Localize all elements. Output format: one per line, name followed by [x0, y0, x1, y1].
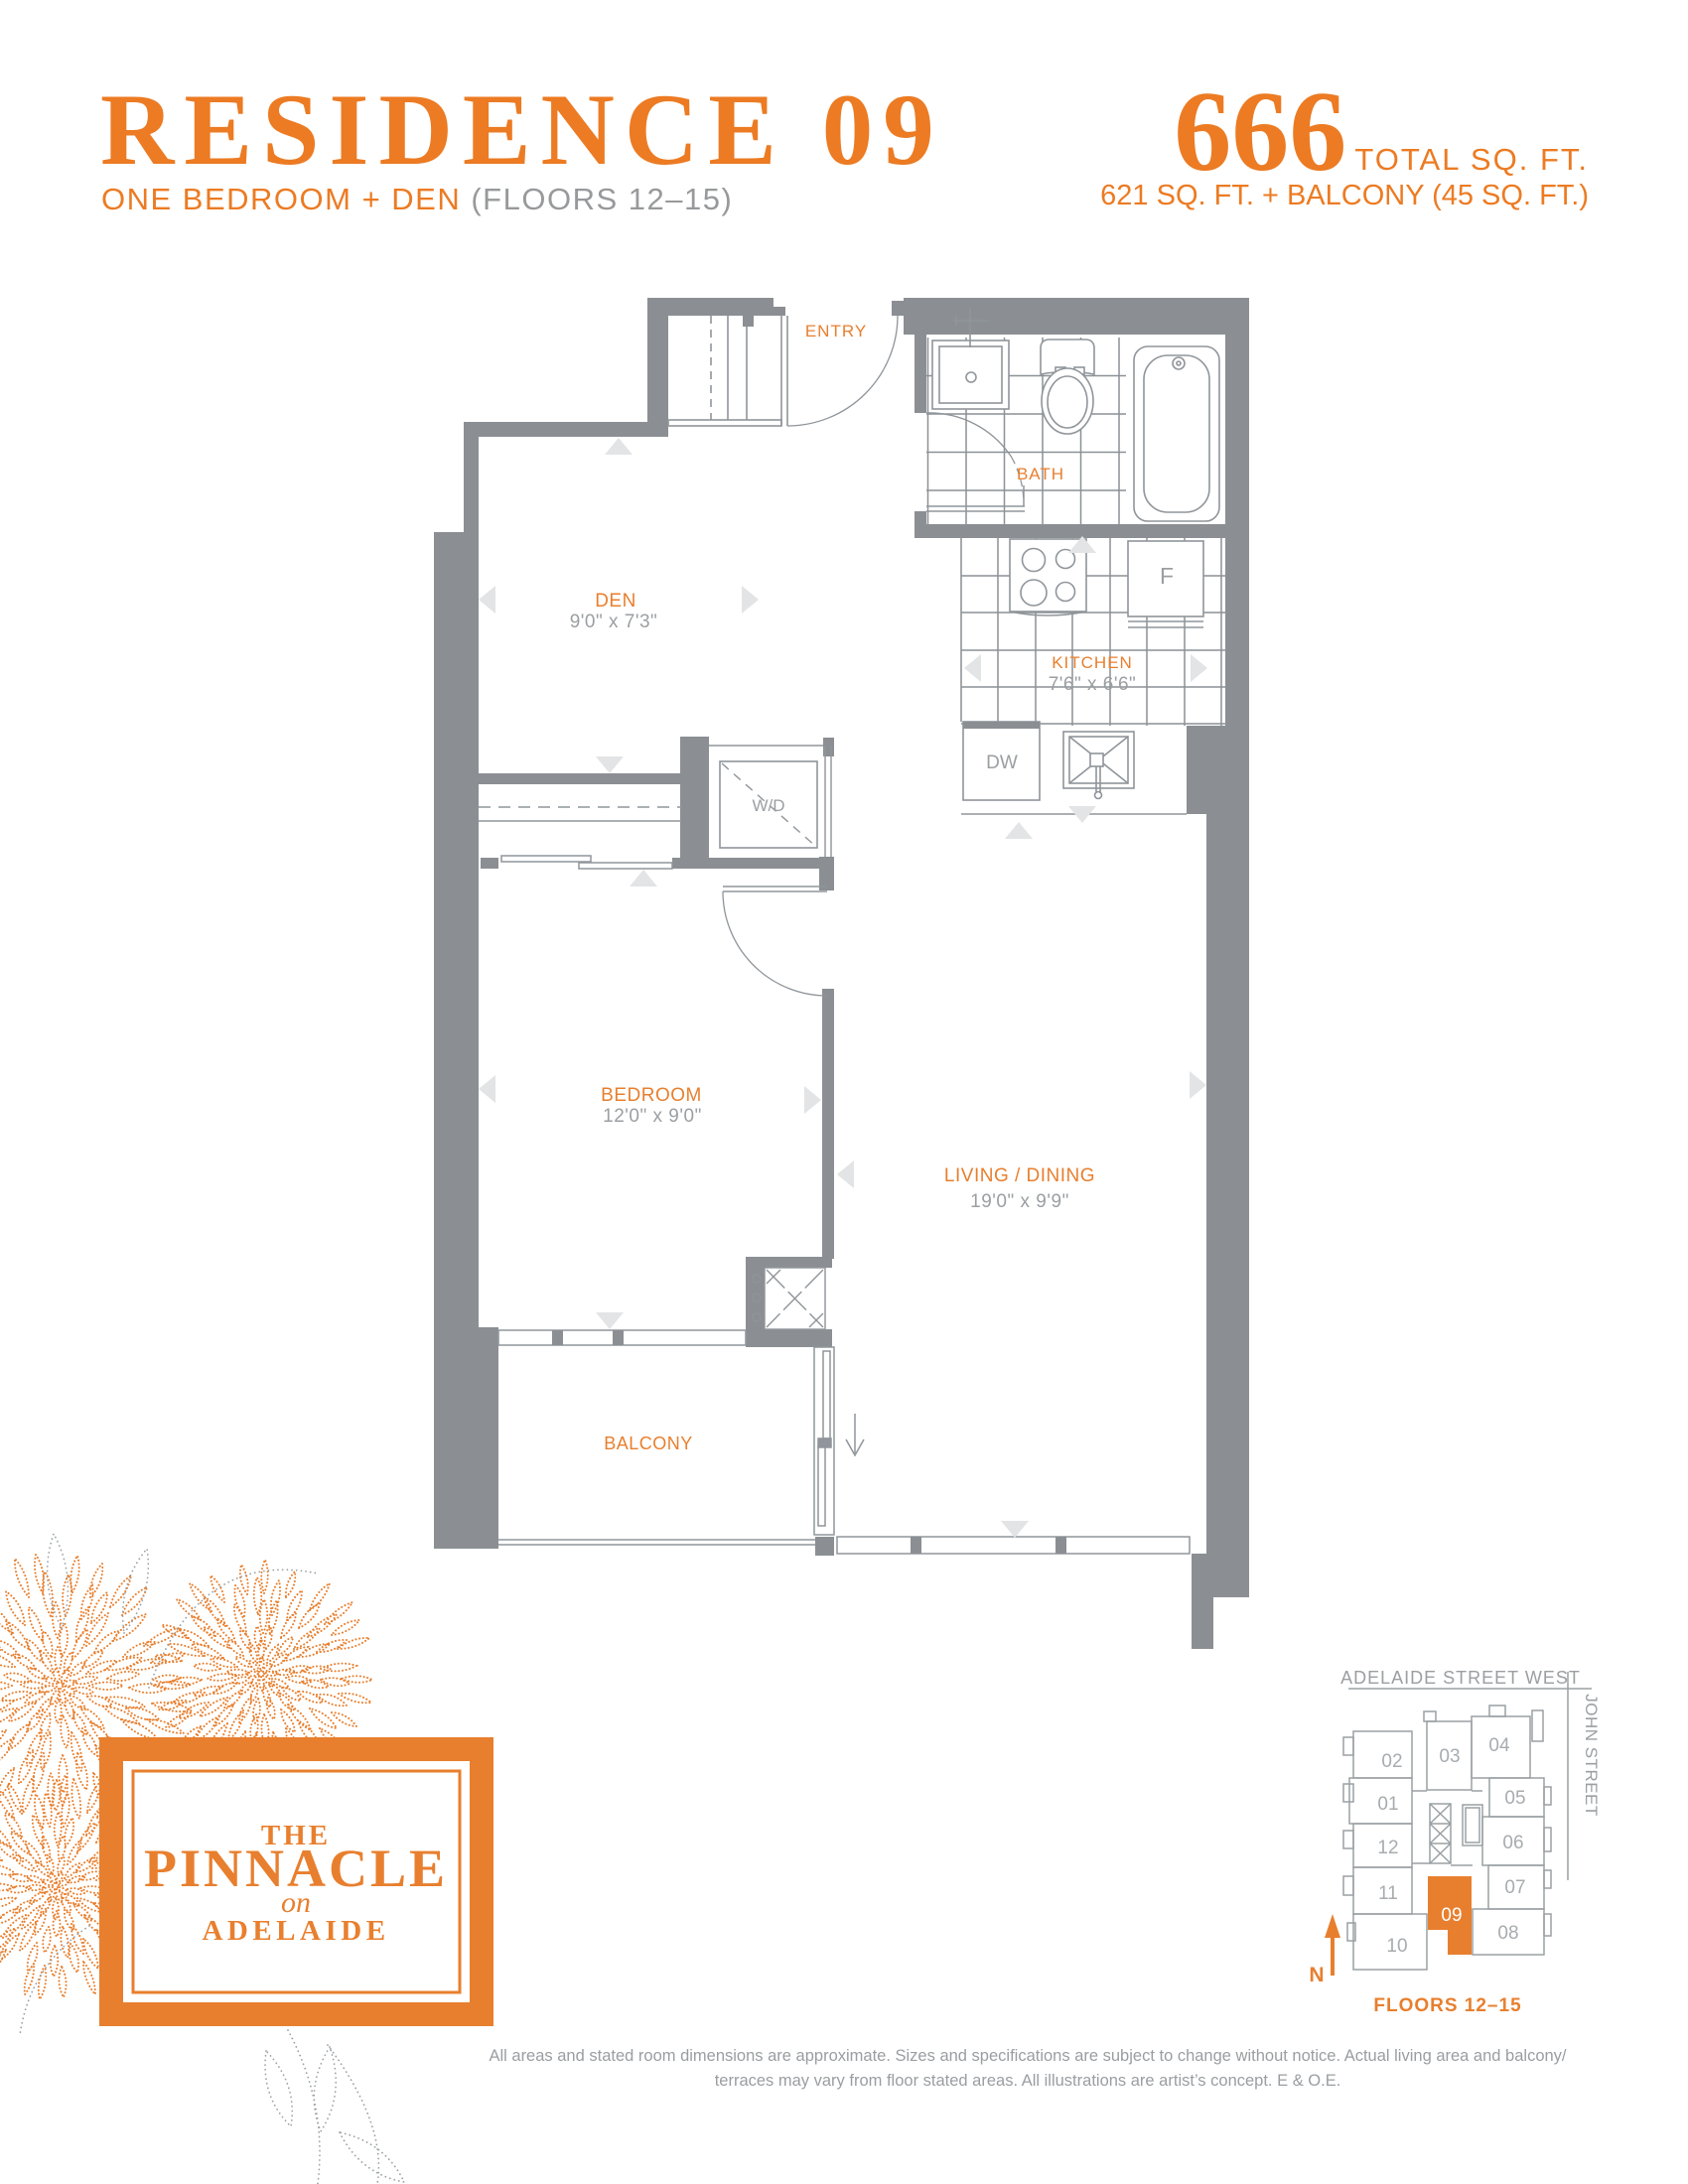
svg-text:BALCONY: BALCONY [604, 1433, 693, 1453]
svg-text:07: 07 [1504, 1877, 1525, 1898]
svg-text:F: F [1160, 563, 1174, 589]
svg-text:ADELAIDE STREET WEST: ADELAIDE STREET WEST [1340, 1668, 1581, 1688]
svg-text:BEDROOM: BEDROOM [601, 1085, 702, 1106]
svg-text:03: 03 [1439, 1746, 1460, 1767]
svg-text:BATH: BATH [1017, 465, 1064, 483]
svg-text:04: 04 [1488, 1735, 1510, 1756]
svg-text:7'6" x 6'6": 7'6" x 6'6" [1049, 674, 1137, 695]
svg-text:LIVING / DINING: LIVING / DINING [944, 1165, 1095, 1186]
svg-text:05: 05 [1504, 1788, 1525, 1809]
svg-text:10: 10 [1386, 1936, 1407, 1957]
svg-text:FLOORS 12–15: FLOORS 12–15 [1373, 1995, 1521, 2016]
svg-text:01: 01 [1377, 1794, 1398, 1815]
svg-text:02: 02 [1381, 1751, 1402, 1772]
svg-text:09: 09 [1441, 1905, 1462, 1926]
svg-text:12'0" x 9'0": 12'0" x 9'0" [603, 1106, 702, 1127]
svg-text:06: 06 [1502, 1833, 1523, 1853]
svg-text:08: 08 [1497, 1923, 1518, 1944]
svg-text:DW: DW [986, 752, 1018, 773]
svg-text:9'0" x 7'3": 9'0" x 7'3" [570, 612, 658, 632]
svg-text:19'0" x 9'9": 19'0" x 9'9" [970, 1191, 1069, 1212]
svg-text:DEN: DEN [595, 591, 636, 612]
svg-text:12: 12 [1377, 1838, 1398, 1858]
svg-text:ADELAIDE: ADELAIDE [202, 1915, 389, 1947]
svg-text:W/D: W/D [752, 796, 784, 815]
svg-text:JOHN STREET: JOHN STREET [1582, 1694, 1601, 1817]
svg-text:ENTRY: ENTRY [805, 322, 867, 341]
svg-text:N: N [1309, 1964, 1324, 1986]
svg-text:11: 11 [1378, 1883, 1398, 1904]
svg-text:KITCHEN: KITCHEN [1052, 653, 1133, 672]
